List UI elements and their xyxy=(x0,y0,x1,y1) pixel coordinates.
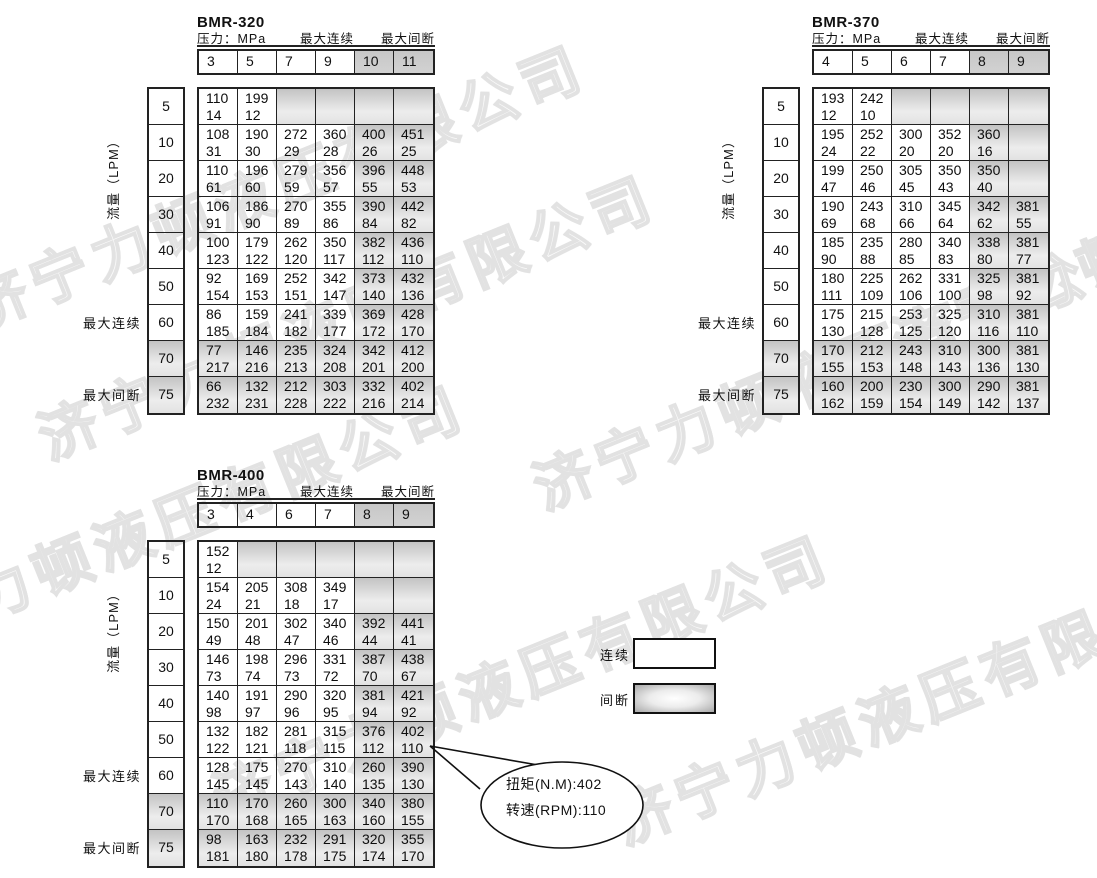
torque-value: 243 xyxy=(853,197,891,215)
torque-value: 340 xyxy=(931,233,969,251)
torque-value: 315 xyxy=(316,722,354,740)
data-cell: 300149 xyxy=(931,377,970,413)
tables-layer: BMR-320压力：MPa最大连续最大间断3579101151020304050… xyxy=(0,0,1097,878)
torque-value: 201 xyxy=(238,614,276,632)
speed-value: 155 xyxy=(814,359,852,376)
data-cell: 291175 xyxy=(316,830,355,866)
data-cell: 29673 xyxy=(277,650,316,686)
torque-value: 381 xyxy=(1009,377,1048,395)
pressure-header-cell: 11 xyxy=(394,51,433,73)
torque-value: 215 xyxy=(853,305,891,323)
speed-value: 12 xyxy=(199,560,237,577)
torque-value: 451 xyxy=(394,125,433,143)
torque-value: 290 xyxy=(970,377,1008,395)
torque-value: 241 xyxy=(277,305,315,323)
speed-value: 110 xyxy=(1009,323,1048,340)
data-grid: 1101419912108311903027229360284002645125… xyxy=(197,87,435,415)
flow-cell: 30 xyxy=(149,650,183,686)
speed-value: 111 xyxy=(814,287,852,304)
torque-value: 369 xyxy=(355,305,393,323)
torque-value: 342 xyxy=(355,341,393,359)
speed-value: 208 xyxy=(316,359,354,376)
torque-value xyxy=(394,578,433,579)
speed-value: 118 xyxy=(277,740,315,757)
data-cell: 28085 xyxy=(892,233,931,269)
data-cell: 200159 xyxy=(853,377,892,413)
data-cell: 30545 xyxy=(892,161,931,197)
torque-value: 175 xyxy=(238,758,276,776)
data-cell: 39655 xyxy=(355,161,394,197)
speed-value: 174 xyxy=(355,848,393,865)
torque-value: 132 xyxy=(238,377,276,395)
speed-value: 178 xyxy=(277,848,315,865)
speed-value: 142 xyxy=(970,395,1008,412)
data-cell xyxy=(1009,89,1048,125)
pressure-header-cell: 7 xyxy=(316,504,355,526)
speed-value: 77 xyxy=(1009,251,1048,268)
data-cell: 159184 xyxy=(238,305,277,341)
data-cell: 342147 xyxy=(316,269,355,305)
data-cell: 252151 xyxy=(277,269,316,305)
torque-value: 381 xyxy=(1009,269,1048,287)
data-cell: 44282 xyxy=(394,197,433,233)
data-cell: 382112 xyxy=(355,233,394,269)
data-cell: 36016 xyxy=(970,125,1009,161)
data-cell: 34564 xyxy=(931,197,970,233)
data-cell xyxy=(970,89,1009,125)
speed-value: 57 xyxy=(316,179,354,196)
max-continuous-header-label: 最大连续 xyxy=(300,481,354,500)
torque-value: 280 xyxy=(892,233,930,251)
flow-cell: 60 xyxy=(149,305,183,341)
data-cell: 25046 xyxy=(853,161,892,197)
data-cell: 19912 xyxy=(238,89,277,125)
data-cell: 175130 xyxy=(814,305,853,341)
side-label-max-continuous: 最大连续 xyxy=(45,766,141,785)
torque-value: 205 xyxy=(238,578,276,596)
torque-value: 193 xyxy=(814,89,852,107)
data-cell: 66232 xyxy=(199,377,238,413)
side-label-max-continuous: 最大连续 xyxy=(45,313,141,332)
speed-value: 48 xyxy=(238,632,276,649)
torque-value: 376 xyxy=(355,722,393,740)
speed-value: 73 xyxy=(277,668,315,685)
data-cell: 35220 xyxy=(931,125,970,161)
torque-value: 212 xyxy=(277,377,315,395)
torque-value: 382 xyxy=(355,233,393,251)
torque-value: 270 xyxy=(277,197,315,215)
speed-value: 24 xyxy=(814,143,852,160)
data-cell: 128145 xyxy=(199,758,238,794)
torque-value: 432 xyxy=(394,269,433,287)
speed-value: 82 xyxy=(394,215,433,232)
speed-value: 92 xyxy=(1009,287,1048,304)
data-cell: 262120 xyxy=(277,233,316,269)
data-cell: 428170 xyxy=(394,305,433,341)
speed-value: 143 xyxy=(931,359,969,376)
speed-value: 20 xyxy=(931,143,969,160)
data-cell: 34083 xyxy=(931,233,970,269)
speed-value: 31 xyxy=(199,143,237,160)
data-cell: 146216 xyxy=(238,341,277,377)
speed-value: 117 xyxy=(316,251,354,268)
torque-value: 260 xyxy=(355,758,393,776)
speed-value: 66 xyxy=(892,215,930,232)
speed-value: 125 xyxy=(892,323,930,340)
speed-value: 59 xyxy=(277,179,315,196)
data-cell: 369172 xyxy=(355,305,394,341)
flow-cell: 30 xyxy=(149,197,183,233)
pressure-header-cell: 7 xyxy=(931,51,970,73)
speed-value: 214 xyxy=(394,395,433,412)
speed-value: 168 xyxy=(238,812,276,829)
data-cell: 30247 xyxy=(277,614,316,650)
data-cell: 332216 xyxy=(355,377,394,413)
data-cell: 380155 xyxy=(394,794,433,830)
speed-value: 89 xyxy=(277,215,315,232)
data-cell: 381130 xyxy=(1009,341,1048,377)
data-cell: 270143 xyxy=(277,758,316,794)
torque-value: 199 xyxy=(814,161,852,179)
pressure-header-cell: 10 xyxy=(355,51,394,73)
flow-cell: 5 xyxy=(764,89,798,125)
speed-value: 217 xyxy=(199,359,237,376)
speed-value: 26 xyxy=(355,143,393,160)
flow-cell: 70 xyxy=(149,341,183,377)
torque-value: 381 xyxy=(355,686,393,704)
side-label-max-continuous: 最大连续 xyxy=(660,313,756,332)
data-cell: 212153 xyxy=(853,341,892,377)
speed-value: 64 xyxy=(931,215,969,232)
speed-value: 137 xyxy=(1009,395,1048,412)
flow-column: 51020304050607075 xyxy=(762,87,800,415)
side-label-max-intermittent: 最大间断 xyxy=(45,385,141,404)
data-cell: 34046 xyxy=(316,614,355,650)
torque-value: 421 xyxy=(394,686,433,704)
data-cell: 24368 xyxy=(853,197,892,233)
speed-value: 88 xyxy=(853,251,891,268)
torque-value: 373 xyxy=(355,269,393,287)
torque-value: 428 xyxy=(394,305,433,323)
data-cell: 24210 xyxy=(853,89,892,125)
data-cell: 281118 xyxy=(277,722,316,758)
speed-value: 90 xyxy=(238,215,276,232)
torque-value: 324 xyxy=(316,341,354,359)
torque-value: 190 xyxy=(814,197,852,215)
speed-value: 16 xyxy=(970,143,1008,160)
torque-value: 291 xyxy=(316,830,354,848)
data-cell: 175145 xyxy=(238,758,277,794)
data-cell: 39084 xyxy=(355,197,394,233)
torque-value: 150 xyxy=(199,614,237,632)
torque-value: 132 xyxy=(199,722,237,740)
torque-value: 438 xyxy=(394,650,433,668)
speed-value: 155 xyxy=(394,812,433,829)
torque-value xyxy=(1009,89,1048,90)
speed-value: 122 xyxy=(238,251,276,268)
speed-value: 201 xyxy=(355,359,393,376)
speed-value: 53 xyxy=(394,179,433,196)
speed-value: 25 xyxy=(394,143,433,160)
data-cell: 212228 xyxy=(277,377,316,413)
speed-value: 22 xyxy=(853,143,891,160)
torque-value: 196 xyxy=(238,161,276,179)
data-cell: 163180 xyxy=(238,830,277,866)
pressure-header-cell: 9 xyxy=(316,51,355,73)
speed-value: 182 xyxy=(277,323,315,340)
speed-value: 94 xyxy=(355,704,393,721)
torque-value: 163 xyxy=(238,830,276,848)
speed-value: 20 xyxy=(892,143,930,160)
speed-value: 106 xyxy=(892,287,930,304)
speed-value: 74 xyxy=(238,668,276,685)
torque-value: 350 xyxy=(316,233,354,251)
speed-value: 130 xyxy=(1009,359,1048,376)
torque-value: 350 xyxy=(970,161,1008,179)
torque-value: 448 xyxy=(394,161,433,179)
speed-value: 49 xyxy=(199,632,237,649)
speed-value: 43 xyxy=(931,179,969,196)
speed-value: 185 xyxy=(199,323,237,340)
torque-value: 360 xyxy=(970,125,1008,143)
torque-value: 100 xyxy=(199,233,237,251)
data-cell: 235213 xyxy=(277,341,316,377)
speed-value: 47 xyxy=(814,179,852,196)
pressure-header-row: 346789 xyxy=(197,502,435,528)
data-cell: 23588 xyxy=(853,233,892,269)
pressure-header-cell: 9 xyxy=(1009,51,1048,73)
data-cell: 320174 xyxy=(355,830,394,866)
speed-value: 70 xyxy=(355,668,393,685)
torque-value: 308 xyxy=(277,578,315,596)
torque-value: 279 xyxy=(277,161,315,179)
torque-value: 190 xyxy=(238,125,276,143)
torque-value: 392 xyxy=(355,614,393,632)
speed-value: 45 xyxy=(892,179,930,196)
flow-cell: 40 xyxy=(149,233,183,269)
data-grid: 1931224210195242522230020352203601619947… xyxy=(812,87,1050,415)
torque-value: 154 xyxy=(199,578,237,596)
data-grid: 1521215424205213081834917150492014830247… xyxy=(197,540,435,868)
data-cell: 10691 xyxy=(199,197,238,233)
speed-value: 123 xyxy=(199,251,237,268)
data-cell: 19947 xyxy=(814,161,853,197)
data-cell: 402110 xyxy=(394,722,433,758)
speed-value: 24 xyxy=(199,596,237,613)
speed-value: 67 xyxy=(394,668,433,685)
data-cell: 260135 xyxy=(355,758,394,794)
torque-value: 381 xyxy=(1009,305,1048,323)
torque-value: 331 xyxy=(316,650,354,668)
data-cell: 14098 xyxy=(199,686,238,722)
data-cell xyxy=(355,578,394,614)
max-continuous-header-label: 最大连续 xyxy=(915,28,969,47)
torque-value: 186 xyxy=(238,197,276,215)
torque-value xyxy=(394,542,433,543)
speed-value: 112 xyxy=(355,740,393,757)
data-cell: 230154 xyxy=(892,377,931,413)
data-cell xyxy=(355,89,394,125)
torque-value: 436 xyxy=(394,233,433,251)
torque-value: 252 xyxy=(853,125,891,143)
speed-value: 72 xyxy=(316,668,354,685)
torque-value xyxy=(316,89,354,90)
torque-value: 350 xyxy=(931,161,969,179)
torque-value: 140 xyxy=(199,686,237,704)
torque-value: 191 xyxy=(238,686,276,704)
data-cell: 325120 xyxy=(931,305,970,341)
flow-cell: 5 xyxy=(149,542,183,578)
speed-value: 12 xyxy=(814,107,852,124)
torque-value: 175 xyxy=(814,305,852,323)
data-cell xyxy=(394,89,433,125)
speed-value: 154 xyxy=(892,395,930,412)
pressure-header-cell: 5 xyxy=(238,51,277,73)
speed-value: 180 xyxy=(238,848,276,865)
data-cell: 310143 xyxy=(931,341,970,377)
torque-value: 230 xyxy=(892,377,930,395)
speed-value: 222 xyxy=(316,395,354,412)
speed-value: 216 xyxy=(238,359,276,376)
speed-value: 160 xyxy=(355,812,393,829)
torque-value: 320 xyxy=(355,830,393,848)
data-cell: 402214 xyxy=(394,377,433,413)
datasheet-page: 济宁力顿液压有限公司 济宁力顿液压有限公司 济宁力顿液压有限公司 济宁力顿液压有… xyxy=(0,0,1097,878)
data-cell: 290142 xyxy=(970,377,1009,413)
flow-axis-label: 流量（LPM） xyxy=(103,117,119,237)
data-cell: 86185 xyxy=(199,305,238,341)
data-cell: 38192 xyxy=(1009,269,1048,305)
data-cell: 331100 xyxy=(931,269,970,305)
data-cell: 110170 xyxy=(199,794,238,830)
data-cell: 390130 xyxy=(394,758,433,794)
data-cell: 36028 xyxy=(316,125,355,161)
torque-value: 345 xyxy=(931,197,969,215)
torque-value: 281 xyxy=(277,722,315,740)
torque-value xyxy=(277,542,315,543)
torque-value: 110 xyxy=(199,161,237,179)
table-subtitle-row: 压力：MPa最大连续最大间断 xyxy=(197,30,435,47)
flow-cell: 10 xyxy=(764,125,798,161)
flow-axis-label: 流量（LPM） xyxy=(103,570,119,690)
torque-value: 442 xyxy=(394,197,433,215)
speed-value: 95 xyxy=(316,704,354,721)
data-cell: 38177 xyxy=(1009,233,1048,269)
torque-value: 349 xyxy=(316,578,354,596)
data-cell: 39244 xyxy=(355,614,394,650)
torque-value: 272 xyxy=(277,125,315,143)
flow-cell: 70 xyxy=(764,341,798,377)
data-cell: 11014 xyxy=(199,89,238,125)
speed-value: 140 xyxy=(355,287,393,304)
pressure-header-cell: 5 xyxy=(853,51,892,73)
data-cell xyxy=(238,542,277,578)
data-cell: 170168 xyxy=(238,794,277,830)
data-cell: 11061 xyxy=(199,161,238,197)
speed-value: 46 xyxy=(853,179,891,196)
speed-value: 159 xyxy=(853,395,891,412)
speed-value: 73 xyxy=(199,668,237,685)
torque-value xyxy=(970,89,1008,90)
flow-axis-label: 流量（LPM） xyxy=(718,117,734,237)
data-cell: 34262 xyxy=(970,197,1009,233)
speed-value: 162 xyxy=(814,395,852,412)
speed-value: 62 xyxy=(970,215,1008,232)
torque-value: 106 xyxy=(199,197,237,215)
data-cell: 432136 xyxy=(394,269,433,305)
data-cell xyxy=(1009,125,1048,161)
pressure-unit-label: 压力：MPa xyxy=(812,28,881,47)
flow-cell: 50 xyxy=(149,722,183,758)
pressure-header-cell: 6 xyxy=(892,51,931,73)
data-cell: 40026 xyxy=(355,125,394,161)
torque-value: 235 xyxy=(277,341,315,359)
speed-value: 130 xyxy=(394,776,433,793)
legend-intermittent-label: 间断 xyxy=(570,690,630,709)
speed-value: 61 xyxy=(199,179,237,196)
speed-value: 83 xyxy=(931,251,969,268)
speed-value: 29 xyxy=(277,143,315,160)
pressure-header-cell: 7 xyxy=(277,51,316,73)
speed-value: 84 xyxy=(355,215,393,232)
data-cell: 180111 xyxy=(814,269,853,305)
torque-value: 340 xyxy=(316,614,354,632)
flow-cell: 75 xyxy=(149,377,183,413)
speed-value: 175 xyxy=(316,848,354,865)
torque-value: 86 xyxy=(199,305,237,323)
pressure-header-cell: 8 xyxy=(355,504,394,526)
data-cell: 373140 xyxy=(355,269,394,305)
flow-cell: 60 xyxy=(149,758,183,794)
data-cell: 20521 xyxy=(238,578,277,614)
data-cell: 19524 xyxy=(814,125,853,161)
speed-value: 12 xyxy=(238,107,276,124)
max-intermittent-header-label: 最大间断 xyxy=(996,28,1050,47)
torque-value: 310 xyxy=(892,197,930,215)
torque-value: 250 xyxy=(853,161,891,179)
torque-value: 412 xyxy=(394,341,433,359)
speed-value: 120 xyxy=(931,323,969,340)
torque-value: 310 xyxy=(316,758,354,776)
pressure-unit-label: 压力：MPa xyxy=(197,481,266,500)
torque-value: 262 xyxy=(277,233,315,251)
flow-cell: 40 xyxy=(149,686,183,722)
pressure-header-row: 456789 xyxy=(812,49,1050,75)
callout-speed-text: 转速(RPM):110 xyxy=(506,800,606,820)
data-cell: 35040 xyxy=(970,161,1009,197)
speed-value: 145 xyxy=(238,776,276,793)
data-cell: 35586 xyxy=(316,197,355,233)
data-cell: 38194 xyxy=(355,686,394,722)
flow-cell: 40 xyxy=(764,233,798,269)
data-cell: 310140 xyxy=(316,758,355,794)
data-cell: 170155 xyxy=(814,341,853,377)
torque-value: 390 xyxy=(394,758,433,776)
data-cell: 19312 xyxy=(814,89,853,125)
data-cell: 215128 xyxy=(853,305,892,341)
data-cell: 232178 xyxy=(277,830,316,866)
speed-value: 165 xyxy=(277,812,315,829)
torque-value: 310 xyxy=(970,305,1008,323)
torque-value xyxy=(931,89,969,90)
torque-value xyxy=(892,89,930,90)
torque-value: 303 xyxy=(316,377,354,395)
torque-value: 441 xyxy=(394,614,433,632)
data-cell: 38770 xyxy=(355,650,394,686)
max-intermittent-header-label: 最大间断 xyxy=(381,481,435,500)
torque-value: 300 xyxy=(970,341,1008,359)
torque-value: 331 xyxy=(931,269,969,287)
